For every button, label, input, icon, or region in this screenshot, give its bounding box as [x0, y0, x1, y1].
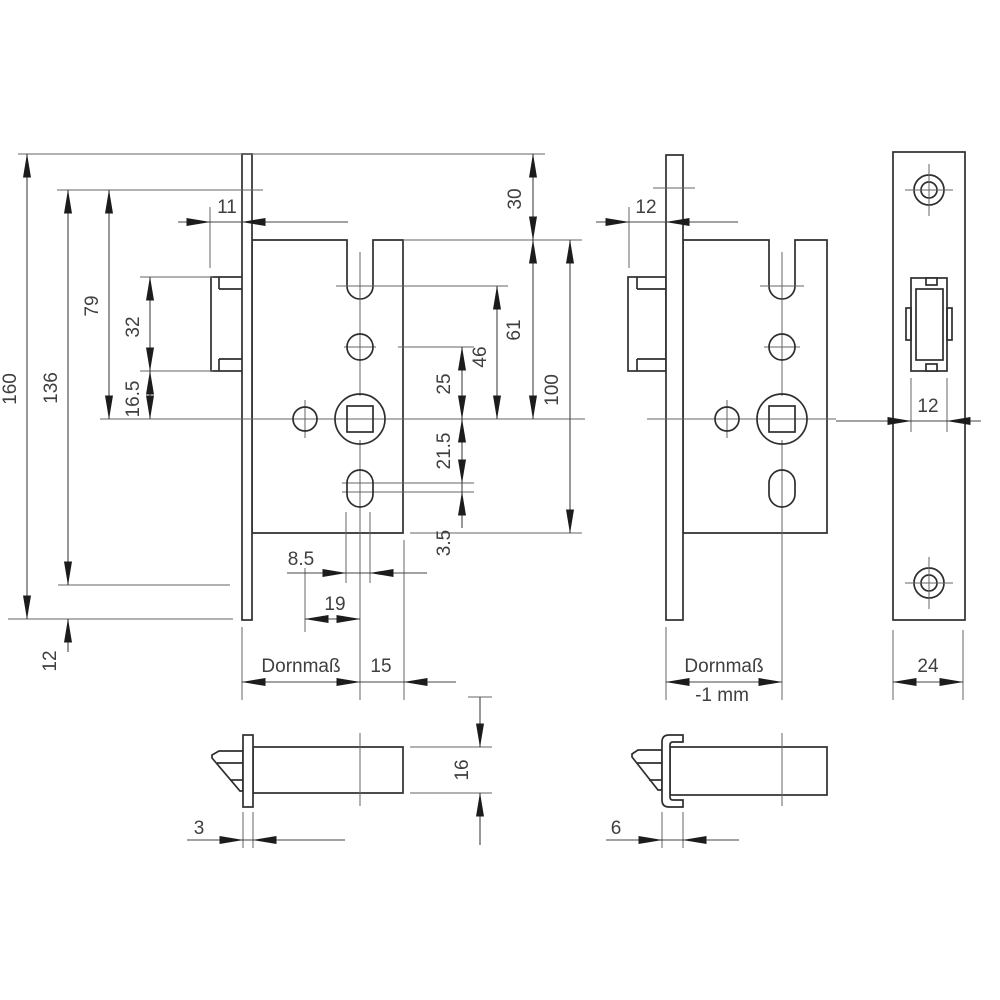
dim-30: 30 — [505, 188, 526, 209]
view-latch-side-channel: 6 — [606, 733, 827, 848]
latch-top-notch — [926, 278, 937, 285]
dim-61: 61 — [504, 319, 525, 340]
view-lock-front-variant: 12 Dornmaß -1 mm — [596, 155, 836, 706]
dim-19: 19 — [324, 594, 345, 615]
dim-total-height: 160 — [0, 373, 21, 405]
dim-32: 32 — [123, 316, 144, 337]
view-faceplate-front: 12 24 — [836, 152, 981, 700]
latch-bottom-notch — [926, 364, 937, 371]
dim-backset-label: Dornmaß — [261, 656, 340, 677]
dim-12-bottom: 12 — [40, 650, 61, 671]
dim-backset-label-variant: Dornmaß — [684, 656, 763, 677]
technical-drawing-canvas: 160 136 79 32 16.5 12 11 30 61 46 25 100 — [0, 0, 1000, 1000]
latch-block — [211, 277, 243, 371]
dim-25: 25 — [434, 373, 455, 394]
dim-46: 46 — [470, 346, 491, 367]
faceplate-strip — [242, 154, 252, 620]
lock-case-outline-variant — [683, 240, 827, 533]
latch-bevel-head-channel — [632, 750, 662, 790]
dim-8-5: 8.5 — [288, 549, 314, 570]
latch-block-variant — [628, 277, 666, 371]
latch-bevel-head — [212, 751, 243, 791]
dim-79: 79 — [82, 295, 103, 316]
faceplate-front-outline — [893, 152, 965, 620]
latch-body-side-channel — [670, 747, 827, 795]
dimensions-latch-channel: 6 — [606, 818, 739, 840]
dim-16-5: 16.5 — [123, 381, 144, 418]
dim-3-5: 3.5 — [434, 530, 455, 556]
view-lock-front-standard: 160 136 79 32 16.5 12 11 30 61 46 25 100 — [0, 154, 585, 700]
dim-backset-note-variant: -1 mm — [695, 685, 749, 706]
dim-plate-thickness-6: 6 — [611, 818, 622, 839]
dim-136: 136 — [41, 372, 62, 404]
lock-case-outline — [252, 240, 403, 533]
dim-12-variant: 12 — [635, 197, 656, 218]
dim-15: 15 — [370, 656, 391, 677]
dim-plate-width: 24 — [917, 656, 939, 677]
dim-100: 100 — [542, 374, 563, 406]
dim-11: 11 — [217, 197, 237, 218]
flat-plate-section — [243, 735, 253, 807]
dim-plate-thickness-3: 3 — [194, 818, 205, 839]
latch-body-side — [253, 747, 403, 793]
drawing-page: 160 136 79 32 16.5 12 11 30 61 46 25 100 — [0, 0, 1000, 1000]
faceplate-strip-variant — [666, 155, 683, 620]
dim-latch-width: 12 — [917, 396, 938, 417]
dim-21-5: 21.5 — [434, 433, 455, 470]
dim-latch-height: 16 — [452, 759, 473, 780]
view-latch-side-flat: 16 3 — [187, 697, 492, 848]
